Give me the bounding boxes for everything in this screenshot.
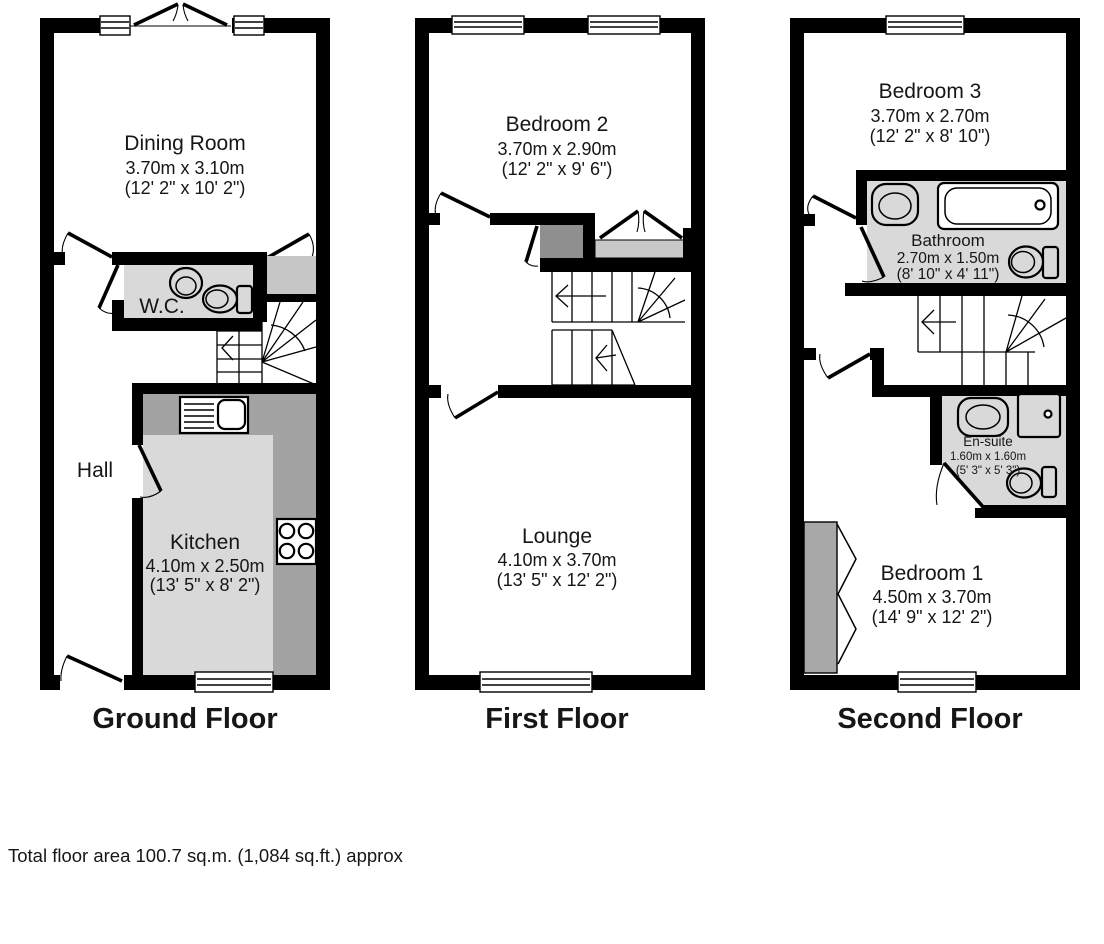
shower-icon (1018, 394, 1060, 437)
hob-icon (277, 519, 316, 564)
front-door-swing (60, 656, 124, 690)
door-swing (62, 233, 112, 257)
door-swing (526, 226, 538, 266)
wall (804, 214, 815, 226)
wall (583, 213, 595, 258)
cupboard (267, 256, 316, 294)
window (588, 16, 660, 34)
ensuite-room: En-suite 1.60m x 1.60m (5' 3" x 5' 3") (930, 385, 1066, 518)
first-floor-title: First Floor (485, 703, 628, 735)
door-swing (267, 234, 313, 258)
wall (790, 18, 804, 690)
bedroom1-metric: 4.50m x 3.70m (872, 587, 991, 607)
dining-room-label: Dining Room (124, 132, 245, 155)
wall (267, 294, 316, 302)
wall (856, 170, 1080, 181)
wall (40, 18, 54, 690)
bathtub-icon (938, 183, 1058, 229)
bedroom2-label: Bedroom 2 (506, 113, 609, 136)
wall (316, 18, 330, 690)
wall (132, 383, 330, 394)
wardrobe (804, 522, 856, 673)
wall (691, 18, 705, 690)
door-swing (448, 392, 498, 418)
window (195, 672, 273, 692)
wall (415, 18, 429, 690)
wall (429, 213, 440, 225)
hall-label: Hall (77, 459, 113, 482)
ensuite-label: En-suite (963, 434, 1013, 449)
dining-room-imperial: (12' 2" x 10' 2") (125, 178, 246, 198)
window (898, 672, 976, 692)
wall (112, 318, 262, 331)
door-swing (435, 193, 490, 217)
wall (540, 258, 705, 272)
wall (856, 170, 867, 225)
total-area-note: Total floor area 100.7 sq.m. (1,084 sq.f… (8, 845, 404, 866)
wall (490, 213, 585, 225)
sink-icon (170, 268, 202, 298)
wall (253, 252, 267, 322)
bathroom-room: Bathroom 2.70m x 1.50m (8' 10" x 4' 11") (845, 170, 1080, 296)
second-floor-plan: Bathroom 2.70m x 1.50m (8' 10" x 4' 11") (790, 16, 1080, 735)
bedroom2-metric: 3.70m x 2.90m (497, 139, 616, 159)
second-floor-title: Second Floor (837, 703, 1022, 735)
staircase (918, 296, 1066, 385)
wall (930, 385, 942, 465)
wall (132, 383, 143, 445)
staircase (552, 272, 685, 385)
lounge-metric: 4.10m x 3.70m (497, 550, 616, 570)
floorplan-page: W.C. (0, 0, 1104, 944)
bathroom-metric: 2.70m x 1.50m (897, 250, 1000, 267)
lounge-label: Lounge (522, 525, 592, 548)
kitchen-room: Kitchen 4.10m x 2.50m (13' 5" x 8' 2") (132, 383, 330, 675)
wall (540, 385, 705, 398)
bedroom1-label: Bedroom 1 (881, 562, 984, 585)
wall (804, 348, 816, 360)
wall (429, 385, 441, 398)
floorplan-canvas: W.C. (0, 0, 1104, 944)
ensuite-imperial: (5' 3" x 5' 3") (956, 465, 1020, 477)
wc-label: W.C. (139, 295, 185, 318)
wall (975, 505, 1066, 518)
wall (872, 385, 930, 397)
wall (54, 252, 65, 265)
ground-floor-plan: W.C. (40, 4, 330, 735)
wall (132, 498, 143, 675)
kitchen-metric: 4.10m x 2.50m (145, 556, 264, 576)
first-floor-plan: Bedroom 2 3.70m x 2.90m (12' 2" x 9' 6")… (415, 16, 705, 735)
balcony-door-swing (595, 211, 685, 258)
window (100, 16, 130, 35)
kitchen-sink-icon (180, 397, 248, 433)
bedroom3-label: Bedroom 3 (879, 80, 982, 103)
wall (112, 252, 265, 265)
kitchen-imperial: (13' 5" x 8' 2") (150, 575, 261, 595)
wall (498, 385, 540, 398)
door-swing (820, 354, 870, 378)
dining-room-metric: 3.70m x 3.10m (125, 158, 244, 178)
kitchen-floor (143, 435, 273, 675)
bathroom-imperial: (8' 10" x 4' 11") (897, 266, 1000, 283)
toilet-icon (1009, 247, 1058, 279)
sink-icon (872, 184, 918, 225)
patio-door-swing (129, 4, 232, 33)
sink-icon (958, 398, 1008, 436)
lounge-imperial: (13' 5" x 12' 2") (497, 570, 618, 590)
bedroom1-imperial: (14' 9" x 12' 2") (872, 607, 993, 627)
ground-floor-title: Ground Floor (92, 703, 277, 735)
bedroom2-imperial: (12' 2" x 9' 6") (502, 159, 613, 179)
bedroom3-metric: 3.70m x 2.70m (870, 106, 989, 126)
window (452, 16, 524, 34)
toilet-icon (203, 286, 252, 314)
wall (845, 283, 1080, 296)
wall (683, 228, 693, 258)
ensuite-metric: 1.60m x 1.60m (950, 451, 1026, 463)
window (886, 16, 964, 34)
bedroom3-imperial: (12' 2" x 8' 10") (870, 126, 991, 146)
wall (112, 300, 124, 318)
kitchen-label: Kitchen (170, 531, 240, 554)
wall (1066, 18, 1080, 690)
bathroom-label: Bathroom (911, 231, 985, 250)
window (234, 16, 264, 35)
window (480, 672, 592, 692)
